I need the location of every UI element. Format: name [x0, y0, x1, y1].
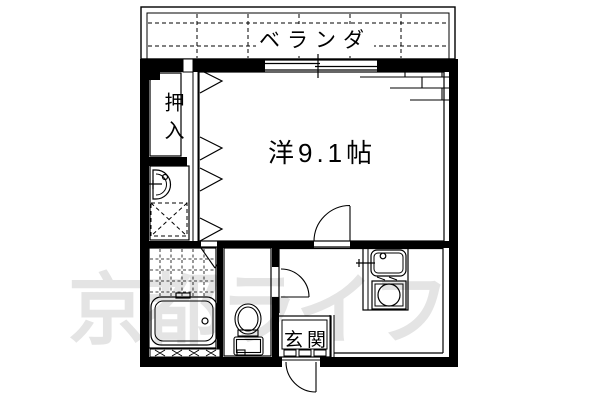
- bathroom-area: [149, 248, 221, 357]
- washbasin-icon: [149, 170, 171, 199]
- toilet-icon: [234, 304, 263, 355]
- main-room-label: 洋9.1帖: [268, 133, 376, 170]
- floor-plan: 京都ライフ: [0, 0, 600, 400]
- pillar-gap: [183, 59, 193, 72]
- sliding-window-icon: [265, 53, 377, 78]
- veranda-label: ベランダ: [256, 24, 374, 54]
- bathtub-icon: [151, 293, 217, 345]
- kitchen-counter: [356, 248, 408, 310]
- closet-label: 押入: [158, 92, 187, 148]
- walls: [140, 59, 458, 367]
- entrance-door-icon: [286, 362, 316, 392]
- washroom-area: [149, 166, 189, 240]
- folding-door-icon: [200, 70, 222, 241]
- stove-burner-icon: [372, 281, 406, 309]
- room-door-icon: [314, 206, 350, 242]
- bathroom-tiles: [150, 249, 215, 298]
- wall-brick-hatch: [360, 72, 449, 100]
- toilet-door-icon: [281, 269, 309, 297]
- washing-machine-space-icon: [151, 203, 187, 236]
- closet-door-frame: [193, 72, 198, 241]
- entrance-label: 玄関: [284, 325, 330, 352]
- bathroom-window-icon: [150, 349, 220, 357]
